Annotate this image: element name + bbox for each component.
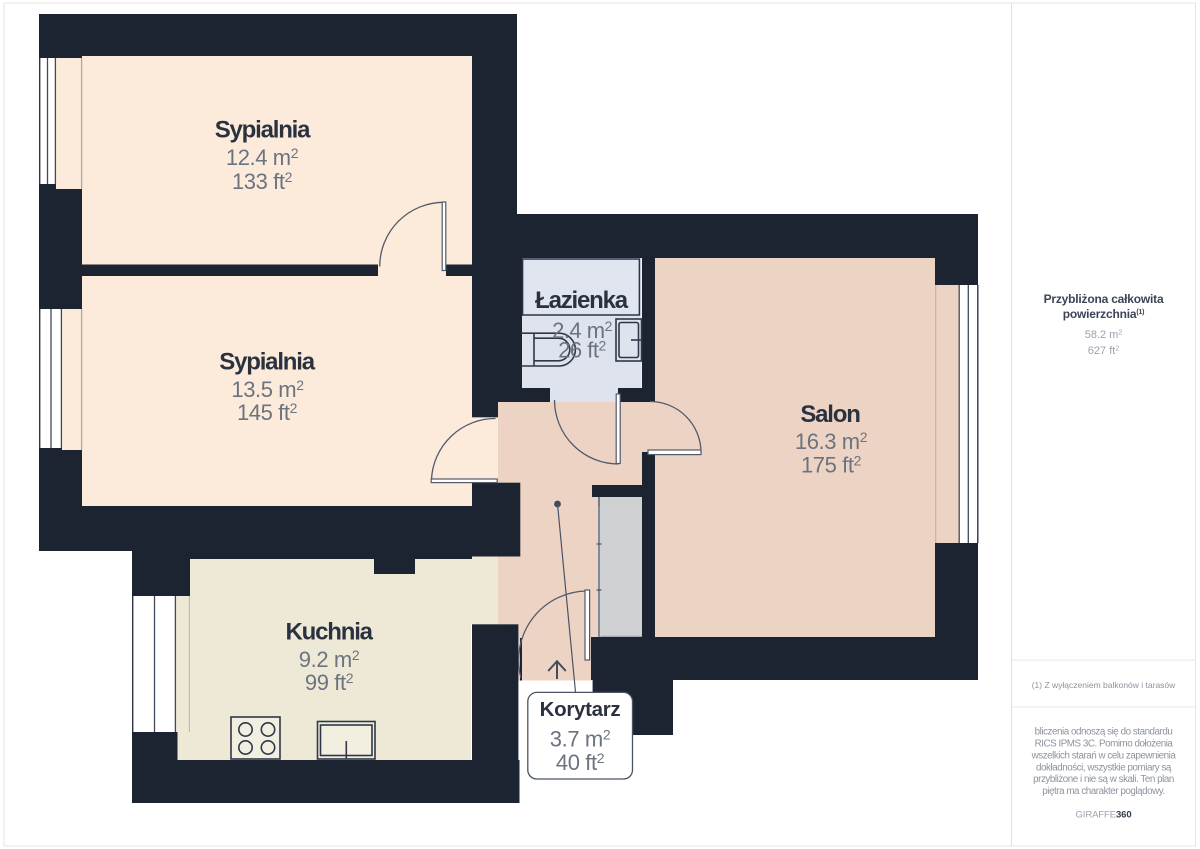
svg-text:dokładności, wszystkie pomiary: dokładności, wszystkie pomiary są: [1036, 762, 1172, 773]
svg-text:Przybliżona całkowita: Przybliżona całkowita: [1044, 292, 1164, 306]
svg-text:Łazienka: Łazienka: [535, 287, 629, 314]
svg-text:3.7 m2: 3.7 m2: [550, 727, 611, 752]
svg-text:przybliżone i nie są w skali.: przybliżone i nie są w skali. Ten plan: [1033, 774, 1174, 785]
svg-text:bliczenia odnoszą się do stand: bliczenia odnoszą się do standardu: [1035, 727, 1173, 738]
svg-text:145 ft2: 145 ft2: [237, 400, 298, 425]
svg-text:13.5 m2: 13.5 m2: [231, 377, 304, 402]
svg-text:powierzchnia(1): powierzchnia(1): [1063, 307, 1145, 321]
svg-text:Sypialnia: Sypialnia: [219, 348, 315, 375]
svg-text:58.2 m2: 58.2 m2: [1085, 329, 1123, 341]
svg-text:RICS IPMS 3C. Pomimo dołożenia: RICS IPMS 3C. Pomimo dołożenia: [1035, 739, 1174, 750]
svg-text:wszelkich starań w celu zapewn: wszelkich starań w celu zapewnienia: [1031, 750, 1177, 761]
svg-text:9.2 m2: 9.2 m2: [299, 647, 360, 672]
svg-text:Korytarz: Korytarz: [540, 698, 621, 721]
svg-text:12.4 m2: 12.4 m2: [226, 145, 299, 170]
svg-text:Kuchnia: Kuchnia: [286, 618, 374, 645]
svg-text:(1) Z wyłączeniem balkonów i t: (1) Z wyłączeniem balkonów i tarasów: [1032, 680, 1176, 690]
svg-text:16.3 m2: 16.3 m2: [795, 429, 868, 454]
svg-text:Salon: Salon: [800, 401, 860, 428]
svg-text:133 ft2: 133 ft2: [232, 169, 293, 194]
svg-text:627 ft2: 627 ft2: [1088, 345, 1120, 357]
svg-text:GIRAFFE360: GIRAFFE360: [1075, 810, 1131, 821]
svg-text:Sypialnia: Sypialnia: [215, 116, 311, 143]
svg-text:175 ft2: 175 ft2: [801, 452, 862, 477]
svg-text:piętra ma charakter poglądowy.: piętra ma charakter poglądowy.: [1042, 786, 1164, 797]
